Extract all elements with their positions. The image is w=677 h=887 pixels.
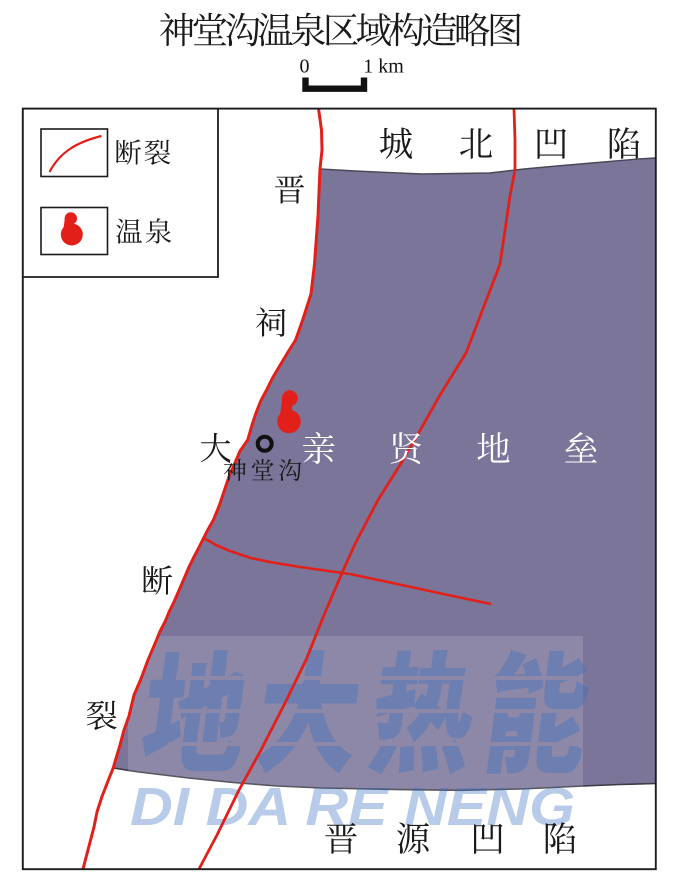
svg-text:1 km: 1 km xyxy=(363,56,404,78)
svg-text:0: 0 xyxy=(300,56,310,78)
